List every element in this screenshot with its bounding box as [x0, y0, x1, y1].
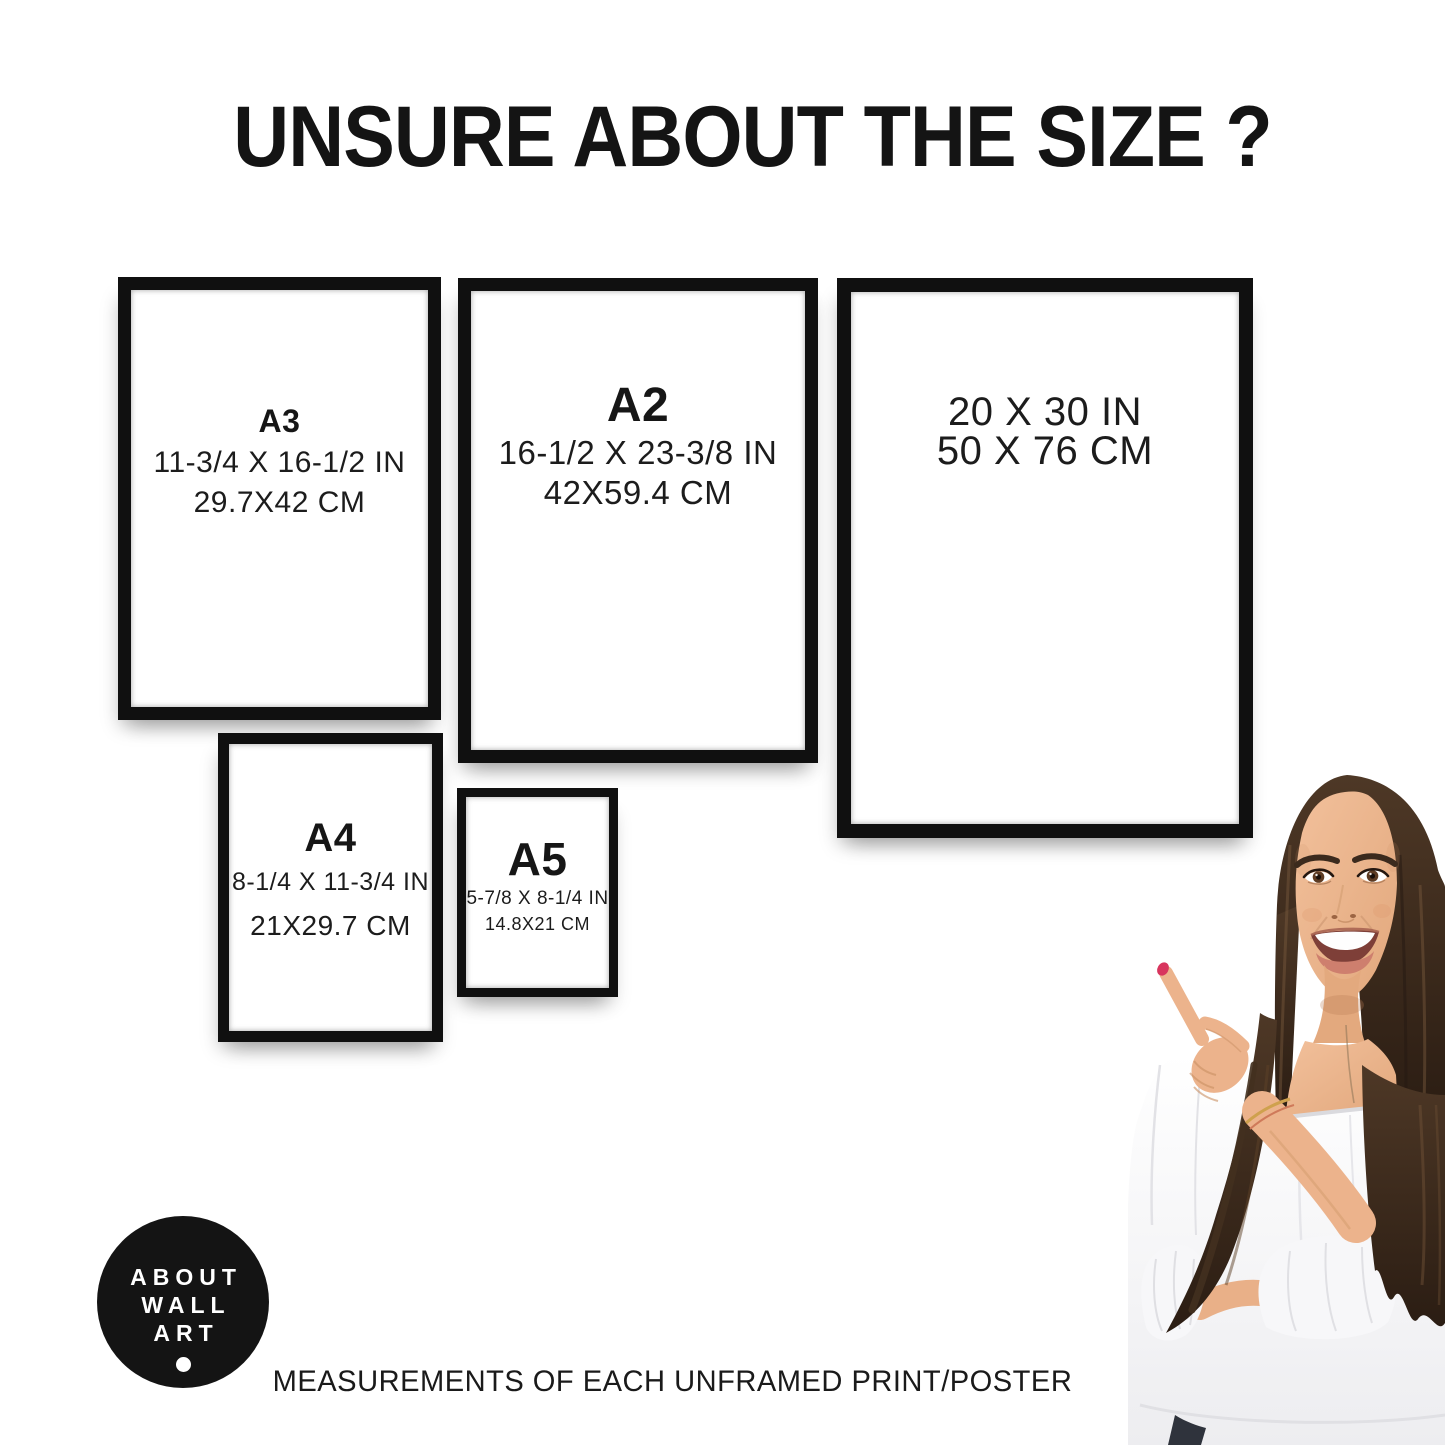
brand-logo: ABOUT WALL ART: [97, 1216, 269, 1388]
frame-a5-text: A5 5-7/8 X 8-1/4 IN 14.8X21 CM: [466, 833, 609, 937]
frame-a2-text: A2 16-1/2 X 23-3/8 IN 42X59.4 CM: [471, 379, 805, 513]
frame-a3-text: A3 11-3/4 X 16-1/2 IN 29.7X42 CM: [131, 399, 428, 523]
frame-a4: A4 8-1/4 X 11-3/4 IN 21X29.7 CM: [218, 733, 443, 1042]
brand-logo-line-3: ART: [97, 1319, 269, 1347]
page-title: UNSURE ABOUT THE SIZE ?: [102, 92, 1403, 182]
frame-a2: A2 16-1/2 X 23-3/8 IN 42X59.4 CM: [458, 278, 818, 763]
brand-logo-line-1: ABOUT: [97, 1263, 269, 1291]
frame-20x30-size-in: 20 X 30 IN: [851, 392, 1239, 432]
frame-20x30-text: 20 X 30 IN 50 X 76 CM: [851, 392, 1239, 470]
frame-20x30-size-cm: 50 X 76 CM: [851, 432, 1239, 470]
index-finger: [1166, 973, 1202, 1039]
frame-a2-label: A2: [471, 379, 805, 433]
brand-logo-line-2: WALL: [97, 1291, 269, 1319]
frame-a3-size-cm: 29.7X42 CM: [131, 483, 428, 523]
frame-a4-text: A4 8-1/4 X 11-3/4 IN 21X29.7 CM: [229, 815, 432, 949]
frame-a4-size-in: 8-1/4 X 11-3/4 IN: [229, 861, 432, 903]
frame-a5-size-cm: 14.8X21 CM: [466, 912, 609, 937]
frame-a3-size-in: 11-3/4 X 16-1/2 IN: [131, 443, 428, 483]
size-guide-poster: UNSURE ABOUT THE SIZE ? A3 11-3/4 X 16-1…: [0, 0, 1445, 1445]
frame-a5-label: A5: [466, 833, 609, 885]
frame-a5-size-in: 5-7/8 X 8-1/4 IN: [466, 885, 609, 912]
frame-a4-size-cm: 21X29.7 CM: [229, 903, 432, 949]
frame-a4-label: A4: [229, 815, 432, 861]
woman-pointing-photo: [1100, 765, 1445, 1445]
frame-a3-label: A3: [131, 399, 428, 443]
frame-a2-size-cm: 42X59.4 CM: [471, 473, 805, 513]
frame-a2-size-in: 16-1/2 X 23-3/8 IN: [471, 433, 805, 473]
frame-a3: A3 11-3/4 X 16-1/2 IN 29.7X42 CM: [118, 277, 441, 720]
frame-20x30: 20 X 30 IN 50 X 76 CM: [837, 278, 1253, 838]
frame-a5: A5 5-7/8 X 8-1/4 IN 14.8X21 CM: [457, 788, 618, 997]
